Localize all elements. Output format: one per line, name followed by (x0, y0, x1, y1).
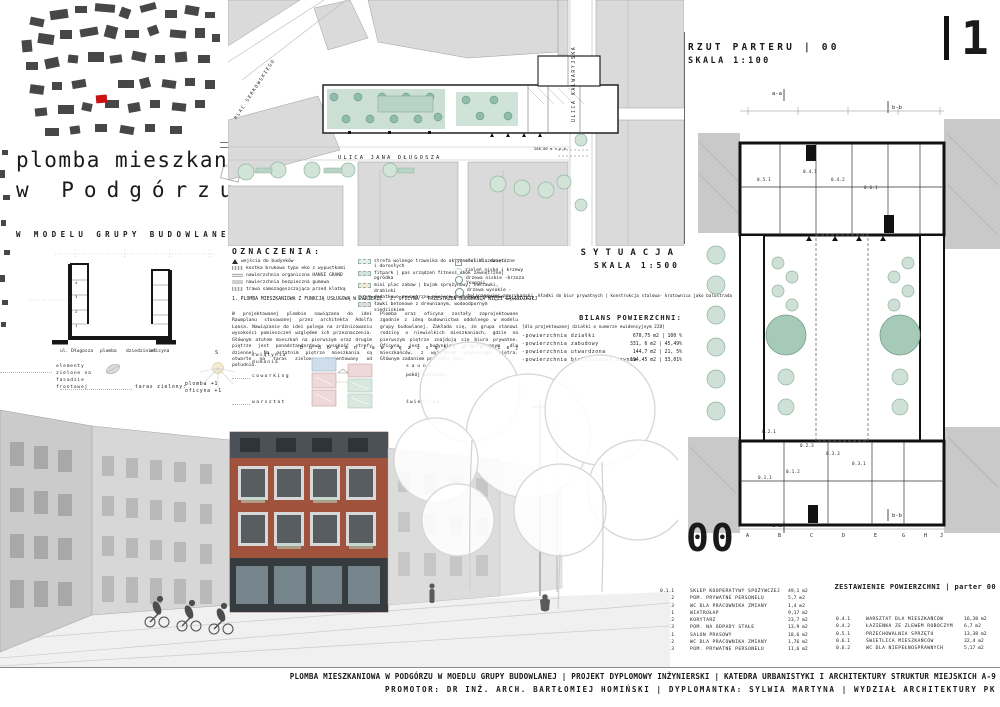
bilans-row-label: -powierzchnia działki (522, 334, 595, 339)
leader-line (0, 372, 52, 373)
plan-room-label: 0.4.2 (831, 178, 845, 183)
page-marker-number: 1 (961, 16, 989, 60)
legend-caption-1: 1. PLOMBA MIESZKANIOWA Z FUNKCJĄ USŁUGOW… (232, 297, 382, 302)
svg-text:D: D (842, 533, 845, 537)
plan-room-label: 0.3.1 (852, 462, 866, 467)
room-name: POM. PRYWATNE PERSONELU (690, 647, 784, 653)
room-number: 0.5.1 (836, 632, 862, 638)
leaf-icon (102, 360, 124, 378)
room-name: WC DLA NIEPEŁNOSPRAWNYCH (866, 646, 960, 652)
low-greenery-icon (455, 268, 462, 275)
street-label-ulica-kalwaryjska: ULICA KALWARYJSKA (572, 46, 577, 122)
plan-room-label: 0.1.1 (758, 476, 772, 481)
axon-label-swiatynia: świątynia dumania (252, 352, 298, 366)
room-name: WARSZTAT DLA MIESZKAŃCÓW (866, 617, 960, 623)
elevation-note: 206,00 m n.p.m. (534, 146, 568, 151)
plan-big-label: 00 (686, 516, 736, 560)
room-name: POM. PRYWATNE PERSONELU (690, 596, 784, 602)
surface-organic-icon (232, 273, 243, 277)
grass-paver-icon (232, 287, 243, 291)
section-diagram-graphic (30, 250, 230, 350)
room-name: SKLEP KOOPERATYWY SPOŻYWCZEJ (690, 589, 784, 595)
room-area: 6,7 m2 (964, 624, 998, 630)
bilans-title: BILANS POWIERZCHNI: (522, 314, 682, 322)
section-marker-bb-bottom: b-b (892, 513, 902, 519)
page-title-line2: w Podgórzu (16, 178, 242, 202)
schedule-right: 0.4.1WARSZTAT DLA MIESZKAŃCÓW16,38 m2 0.… (836, 617, 996, 653)
room-number: 0.6.2 (836, 646, 862, 652)
street-label-ulica-jana-dlugosza: ULICA JANA DŁUGOSZA (338, 155, 441, 161)
plan-title: RZUT PARTERU | 00 (688, 42, 840, 53)
leader-line (232, 378, 250, 379)
plan-scale: SKALA 1:100 (688, 56, 771, 66)
schedule-left: 0.1.1SKLEP KOOPERATYWY SPOŻYWCZEJ49,1 m2… (660, 589, 830, 654)
site-location-marker (96, 94, 108, 103)
room-name: SALON PRASOWY (690, 633, 784, 639)
room-area: 9,17 m2 (788, 611, 822, 617)
footer-divider (0, 667, 1000, 668)
schedule-row: 0.6.1ŚWIETLICA MIESZKAŃCÓW32,4 m2 (836, 639, 996, 645)
sun-south-label: S (215, 350, 218, 356)
room-area: 13,38 m2 (964, 632, 998, 638)
bilans-row-value: 670,75 m2 | 100 % (592, 334, 682, 339)
svg-text:J: J (940, 533, 943, 537)
section-marker-aa-bottom: a-a (772, 523, 782, 529)
tall-tree-icon (455, 288, 464, 297)
section-marker-bb-top: b-b (892, 105, 902, 111)
paving-eco-icon (232, 266, 243, 270)
room-number: 0.4.2 (836, 624, 862, 630)
svg-text:G: G (902, 533, 905, 537)
room-area: 32,4 m2 (964, 639, 998, 645)
schedule-row: 0.3.3POM. PRYWATNE PERSONELU11,6 m2 (660, 647, 830, 653)
axon-label-coworking: coworking (252, 374, 290, 379)
site-plan-graphic (228, 0, 684, 246)
room-area: 1,4 m2 (788, 604, 822, 610)
bench-icon (358, 302, 371, 307)
site-plan-caption: SYTUACJA (505, 248, 680, 258)
legend-item: kostka brukowa typu eko z wypustkami (232, 266, 354, 271)
green-facade-note: elementy zielone na fasadzie frontowej (56, 364, 102, 392)
panel-divider (684, 32, 685, 244)
room-name: WIATROŁAP (690, 611, 784, 617)
section-floor-numbers: 4321 (75, 276, 77, 334)
page-marker: 1 (944, 16, 989, 60)
schedule-row: 0.1.1SKLEP KOOPERATYWY SPOŻYWCZEJ49,1 m2 (660, 589, 830, 595)
leader-line (60, 389, 132, 390)
schedule-row: 0.2.2KORYTARZ23,7 m2 (660, 618, 830, 624)
schedule-row: 0.2.3POM. NA ODPADY STAŁE13,9 m2 (660, 625, 830, 631)
legend-col3: stoliki zewnętrzne zieleń niska i krzewy… (455, 259, 543, 301)
room-area: 18,6 m2 (788, 633, 822, 639)
plan-room-label: 0.2.3 (800, 444, 814, 449)
page-marker-bar (944, 16, 949, 60)
room-name: ŁAZIENKA ZE ZLEWEM ROBOCZYM (866, 624, 960, 630)
legend-item: drzewa niskie -brzoza Youngii (455, 276, 543, 287)
outdoor-table-icon (455, 259, 462, 266)
legend-col1: wejścia do budynków kostka brukowa typu … (232, 259, 354, 293)
room-area: 5,17 m2 (964, 646, 998, 652)
svg-text:H: H (924, 533, 927, 537)
svg-text:C: C (810, 533, 813, 537)
playground-icon (358, 283, 371, 288)
legend-item: wejścia do budynków (232, 259, 354, 264)
room-area: 23,7 m2 (788, 618, 822, 624)
room-name: ŚWIETLICA MIESZKAŃCÓW (866, 639, 960, 645)
plan-room-label: 0.1.2 (786, 470, 800, 475)
room-name: WC DLA PRACOWNIKA ZMIANY (690, 640, 784, 646)
room-area: 1,76 m2 (788, 640, 822, 646)
svg-text:A: A (746, 533, 749, 537)
footer-project-line: PLOMBA MIESZKANIOWA W PODGÓRZU W MOEDLU … (290, 672, 996, 681)
page-subtitle: W MODELU GRUPY BUDOWLANEJ (16, 230, 239, 239)
room-name: WC DLA PRACOWNIKA ZMIANY (690, 604, 784, 610)
legend-item: zieleń niska i krzewy (455, 268, 543, 275)
room-area: 13,9 m2 (788, 625, 822, 631)
floor-plan-graphic: a-a b-b a-a b-b ABCDEGHJ (688, 85, 1000, 537)
plan-room-label: 0.4.1 (803, 170, 817, 175)
legend-item: nawierzchnia organiczna HANSE GRAND (232, 273, 354, 278)
low-tree-icon (455, 276, 463, 284)
svg-text:B: B (778, 533, 781, 537)
footer-credits-line: PROMOTOR: DR INŻ. ARCH. BARTŁOMIEJ HOMIŃ… (385, 685, 996, 694)
legend-caption-2: 2. OFICYNA - PRZESTRZEŃ BUDOWANIA WIĘZI … (390, 297, 537, 302)
section-label-plomba: plomba (100, 349, 117, 354)
schedule-row: 0.3.1SALON PRASOWY18,6 m2 (660, 633, 830, 639)
room-area: 16,38 m2 (964, 617, 998, 623)
section-label-oficyna: oficyna (150, 349, 169, 354)
presentation-board: plomba mieszkaniowa w Podgórzu W MODELU … (0, 0, 1000, 707)
green-terrace-label: taras zielony: (135, 385, 187, 390)
schedule-row: 0.1.3WC DLA PRACOWNIKA ZMIANY1,4 m2 (660, 604, 830, 610)
lawn-zone-icon (358, 259, 371, 264)
schedule-row: 0.2.1WIATROŁAP9,17 m2 (660, 611, 830, 617)
entrance-triangle-icon (232, 259, 238, 264)
plan-room-label: 0.6.1 (864, 186, 878, 191)
room-number: 0.4.1 (836, 617, 862, 623)
schedule-row: 0.3.2WC DLA PRACOWNIKA ZMIANY1,76 m2 (660, 640, 830, 646)
room-name: PRZECHOWALNIA SPRZĘTU (866, 632, 960, 638)
schedule-row: 0.5.1PRZECHOWALNIA SPRZĘTU13,38 m2 (836, 632, 996, 638)
schedule-row: 0.4.2ŁAZIENKA ZE ZLEWEM ROBOCZYM6,7 m2 (836, 624, 996, 630)
legend-item: stoliki zewnętrzne (455, 259, 543, 266)
section-marker-aa-top: a-a (772, 91, 782, 97)
surface-rubber-icon (232, 280, 243, 284)
plan-room-label: 0.5.1 (757, 178, 771, 183)
room-name: KORYTARZ (690, 618, 784, 624)
legend-title: OZNACZENIA: (232, 247, 322, 256)
room-name: POM. NA ODPADY STAŁE (690, 625, 784, 631)
fitpark-icon (358, 271, 371, 276)
legend-item: nawierzchnia bezpieczna gumowa (232, 280, 354, 285)
room-number: 0.6.1 (836, 639, 862, 645)
plan-room-label: 0.3.3 (826, 452, 840, 457)
schedule-row: 0.1.2POM. PRYWATNE PERSONELU5,7 m2 (660, 596, 830, 602)
room-area: 5,7 m2 (788, 596, 822, 602)
bilans-note: [dla projektowanej działki o numerze ewi… (522, 325, 665, 330)
schedule-row: 0.4.1WARSZTAT DLA MIESZKAŃCÓW16,38 m2 (836, 617, 996, 623)
svg-text:E: E (874, 533, 877, 537)
room-area: 49,1 m2 (788, 589, 822, 595)
plan-room-label: 0.2.1 (762, 430, 776, 435)
section-label-ul-dlugosza: ul. Długosza (60, 349, 93, 354)
sketch-trees-overlay (388, 340, 678, 625)
schedule-row: 0.6.2WC DLA NIEPEŁNOSPRAWNYCH5,17 m2 (836, 646, 996, 652)
legend-item: trawa samozagęszczająca przed klatką (232, 287, 354, 292)
room-area: 11,6 m2 (788, 647, 822, 653)
